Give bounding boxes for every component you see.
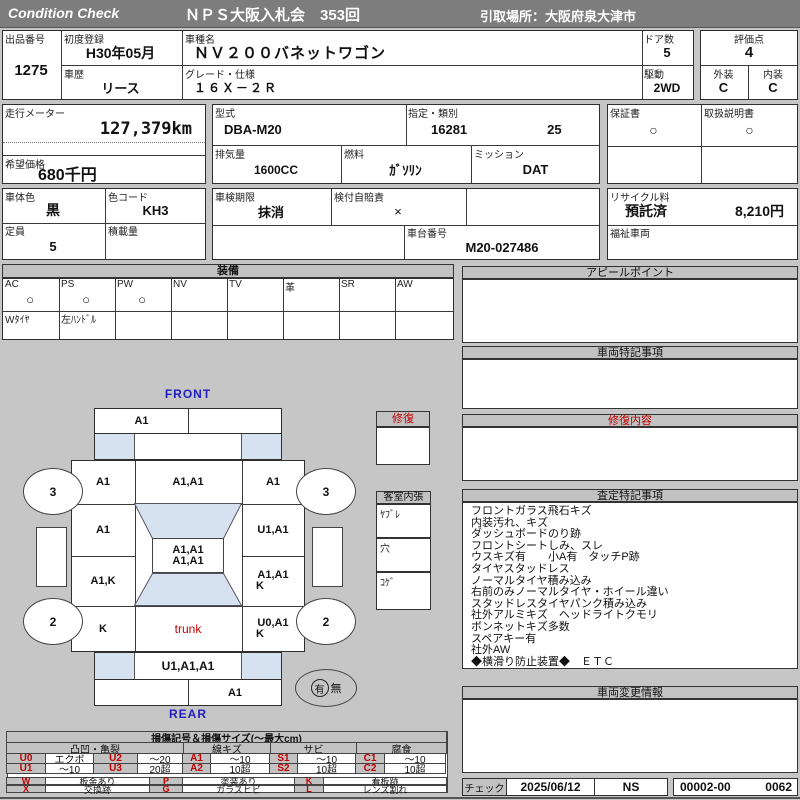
front-door-left-damage: A1 xyxy=(72,504,134,555)
change-info-body xyxy=(462,699,798,773)
equip-sr-label: SR xyxy=(341,279,355,290)
assessment-item: スペアキー有 xyxy=(471,634,789,646)
rear-gate-strip: U1,A1,A1 xyxy=(94,652,282,680)
front-bumper: A1 xyxy=(94,408,282,434)
first-registration-value: H30年05月 xyxy=(61,40,180,65)
roof-damage-line2: A1,A1 xyxy=(172,556,203,567)
body-color-value: 黒 xyxy=(2,198,104,222)
rear-bumper-right-damage: A1 xyxy=(189,680,281,705)
grade-cell: グレード・仕様 １６Ｘ－２Ｒ xyxy=(182,65,639,100)
interior-grade-cell: 内装 C xyxy=(748,65,798,100)
legend-value: ガラスヒビ xyxy=(182,785,295,793)
chassis-cell: 車台番号 M20-027486 xyxy=(404,224,600,260)
roof-damage: A1,A1 A1,A1 xyxy=(153,539,223,572)
recycle-status-value: 預託済 xyxy=(625,201,667,221)
header-bar: Condition Check ＮＰＳ大阪入札会 353回 引取場所：大阪府泉大… xyxy=(0,0,800,28)
equip-ac-cell: AC ○ xyxy=(2,278,58,310)
roof-damage-line1: A1,A1 xyxy=(172,545,203,556)
hood-damage: A1,A1 xyxy=(135,461,241,503)
quarter-right-damage-line2: K xyxy=(242,629,264,640)
warranty-cell: 保証書 ○ xyxy=(607,104,700,145)
front-door-right-damage: U1,A1 xyxy=(242,504,304,555)
equip-ps-cell: PS ○ xyxy=(58,278,114,310)
cabin-hole-label: 穴 xyxy=(380,540,390,555)
repair-mini-header: 修復 xyxy=(376,411,430,427)
legend-code: U3 xyxy=(93,763,138,774)
rear-door-right-damage-line2: K xyxy=(242,581,264,592)
legend-value: 10超 xyxy=(297,763,356,774)
legend-value: 10超 xyxy=(384,763,446,774)
trunk-label: trunk xyxy=(135,606,241,651)
price-cell: 希望価格 680千円 xyxy=(2,155,206,184)
sheet-number-2: 0062 xyxy=(765,780,792,794)
legend-value: 10超 xyxy=(210,763,270,774)
legend-code: S2 xyxy=(269,763,298,774)
diagram-front-label: FRONT xyxy=(138,387,238,400)
score-cell: 評価点 4 xyxy=(700,30,798,65)
spare-tire-no: 無 xyxy=(331,680,342,696)
lot-number-cell: 出品番号 1275 xyxy=(2,30,60,100)
repair-content-header: 修復内容 xyxy=(462,414,798,427)
equip-aw-label: AW xyxy=(397,279,413,290)
legend-value: 交換跡 xyxy=(45,785,150,793)
drive-cell: 駆動 2WD xyxy=(641,65,693,100)
rear-door-right-damage: A1,A1 K xyxy=(242,556,304,605)
side-step-right xyxy=(312,527,343,587)
equipment-header: 装備 xyxy=(2,264,454,278)
class-category-value: 25 xyxy=(547,122,561,137)
roof-panel: A1,A1 A1,A1 xyxy=(152,538,224,573)
check-inspector: NS xyxy=(595,779,667,795)
appeal-points-header: アピールポイント xyxy=(462,266,798,279)
model-code-value: DBA-M20 xyxy=(212,114,405,144)
wheel-rear-right: 2 xyxy=(296,598,356,645)
fuel-value: ｶﾞｿﾘﾝ xyxy=(341,155,470,184)
vehicle-notes-header: 車両特記事項 xyxy=(462,346,798,359)
manual-cell: 取扱説明書 ○ xyxy=(701,104,798,145)
class-number-value: 16281 xyxy=(431,122,467,137)
rear-gate-damage: U1,A1,A1 xyxy=(135,653,241,679)
equip-pw-mark: ○ xyxy=(114,288,170,310)
inspection-cell: 車検期限 抹消 xyxy=(212,188,330,224)
cabin-tear-label: ﾔﾌﾞﾚ xyxy=(380,506,400,521)
rear-corner-left xyxy=(95,653,135,679)
chassis-value: M20-027486 xyxy=(404,234,600,260)
equip-tv-label: TV xyxy=(229,279,242,290)
equip-wtire-cell: Wﾀｲﾔ xyxy=(2,310,58,340)
equip-ac-mark: ○ xyxy=(2,288,58,310)
legend-value: 20超 xyxy=(137,763,183,774)
doors-cell: ドア数 5 xyxy=(641,30,693,65)
interior-grade-value: C xyxy=(748,75,798,100)
history-cell: 車歴 リース xyxy=(61,65,180,100)
first-registration-cell: 初度登録 H30年05月 xyxy=(61,30,180,65)
model-name-cell: 車種名 ＮＶ２００バネットワゴン xyxy=(182,30,639,65)
score-value: 4 xyxy=(700,40,798,65)
odometer-value: 127,379km xyxy=(2,114,206,144)
front-cowl-strip xyxy=(94,433,282,460)
rear-window-glass xyxy=(134,573,242,606)
equip-wtire-label: Wﾀｲﾔ xyxy=(5,311,29,326)
auction-title: ＮＰＳ大阪入札会 353回 xyxy=(185,4,360,25)
warranty-mark: ○ xyxy=(607,114,700,145)
rear-door-right-damage-line1: A1,A1 xyxy=(257,570,288,581)
history-value: リース xyxy=(61,75,180,100)
lot-number-value: 1275 xyxy=(2,40,60,100)
capacity-cell: 定員 5 xyxy=(2,222,104,260)
equip-lhd-cell: 左ﾊﾝﾄﾞﾙ xyxy=(58,310,114,340)
quarter-right-damage: U0,A1 K xyxy=(242,606,304,651)
recycle-fee-cell: リサイクル料 預託済 8,210円 xyxy=(607,188,798,224)
legend-code: G xyxy=(149,785,183,793)
welfare-cell: 福祉車両 xyxy=(607,224,798,260)
welfare-value xyxy=(607,234,798,260)
manual-mark: ○ xyxy=(701,114,798,145)
model-code-cell: 型式 DBA-M20 xyxy=(212,104,405,144)
pickup-location: 引取場所：大阪府泉大津市 xyxy=(480,6,636,25)
insurance-cell: 検付自賠責 × xyxy=(331,188,465,224)
equip-nv-cell: NV xyxy=(170,278,226,310)
assessment-item: 社外AW xyxy=(471,645,789,657)
transmission-value: DAT xyxy=(471,155,600,184)
repair-content-body xyxy=(462,427,798,481)
cabin-burn-cell: ｺｹﾞ xyxy=(376,572,431,610)
assessment-item: タイヤスタッドレス xyxy=(471,564,789,576)
sheet-number-1: 00002-00 xyxy=(680,780,731,794)
repair-mini-body xyxy=(376,427,430,465)
exterior-grade-value: C xyxy=(700,75,747,100)
spare-tire-marker: 有 無 xyxy=(295,669,357,707)
equip-leather-cell: 革 xyxy=(282,278,338,310)
bottom-divider xyxy=(0,797,800,799)
legend-code: A2 xyxy=(182,763,211,774)
front-corner-right xyxy=(241,434,281,459)
front-corner-left xyxy=(95,434,135,459)
equip-leather-label: 革 xyxy=(285,279,295,294)
rear-door-left-damage: A1,K xyxy=(72,556,134,605)
windshield-glass xyxy=(134,503,242,539)
sheet-number-box: 00002-00 0062 xyxy=(673,778,798,796)
brand-logo: Condition Check xyxy=(8,5,119,21)
legend-code: L xyxy=(294,785,324,793)
recycle-fee-value: 8,210円 xyxy=(735,201,784,221)
load-value xyxy=(105,232,206,260)
assessment-notes-body: フロントガラス飛石キズ 内装汚れ、キズ ダッシュボードのり跡 フロントシートしみ… xyxy=(462,502,798,669)
price-value: 680千円 xyxy=(2,161,206,184)
displacement-value: 1600CC xyxy=(212,155,340,184)
equip-aw-cell: AW xyxy=(394,278,452,310)
legend-data-row-2: U1 ～10 U3 20超 A2 10超 S2 10超 C2 10超 xyxy=(7,763,448,774)
fender-right-damage: A1 xyxy=(242,461,304,503)
color-code-value: KH3 xyxy=(105,198,206,222)
diagram-rear-label: REAR xyxy=(138,707,238,720)
inspection-value: 抹消 xyxy=(212,198,330,224)
assessment-item: フロントガラス飛石キズ xyxy=(471,506,789,518)
equip-lhd-label: 左ﾊﾝﾄﾞﾙ xyxy=(61,311,96,326)
equip-ps-mark: ○ xyxy=(58,288,114,310)
transmission-cell: ミッション DAT xyxy=(471,145,600,184)
appeal-points-body xyxy=(462,279,798,343)
assessment-item: ◆横滑り防止装置◆ ＥＴＣ xyxy=(471,657,789,669)
cabin-hole-cell: 穴 xyxy=(376,538,431,572)
check-label: チェック xyxy=(463,779,507,795)
side-step-left xyxy=(36,527,67,587)
assessment-item: 右前のみノーマルタイヤ・ホイール違い xyxy=(471,587,789,599)
legend-code: C2 xyxy=(355,763,385,774)
cabin-lining-header: 客室内張 xyxy=(376,491,431,504)
change-info-header: 車両変更情報 xyxy=(462,686,798,699)
wheel-front-left: 3 xyxy=(23,468,83,515)
equip-tv-cell: TV xyxy=(226,278,282,310)
assessment-item: ボンネットキズ多数 xyxy=(471,622,789,634)
assessment-notes-header: 査定特記事項 xyxy=(462,489,798,502)
spare-tire-yes-circled: 有 xyxy=(311,679,329,697)
front-bumper-left-damage: A1 xyxy=(95,409,188,433)
drive-value: 2WD xyxy=(641,75,693,100)
equip-pw-cell: PW ○ xyxy=(114,278,170,310)
cabin-burn-label: ｺｹﾞ xyxy=(380,574,395,589)
legend-value: レンズ割れ xyxy=(323,785,447,793)
equip-nv-label: NV xyxy=(173,279,187,290)
fuel-cell: 燃料 ｶﾞｿﾘﾝ xyxy=(341,145,470,184)
doors-value: 5 xyxy=(641,40,693,65)
cabin-tear-cell: ﾔﾌﾞﾚ xyxy=(376,504,431,538)
grade-value: １６Ｘ－２Ｒ xyxy=(182,75,639,100)
color-code-cell: 色コード KH3 xyxy=(105,188,206,222)
capacity-value: 5 xyxy=(2,232,104,260)
exterior-grade-cell: 外装 C xyxy=(700,65,747,100)
auction-condition-sheet: Condition Check ＮＰＳ大阪入札会 353回 引取場所：大阪府泉大… xyxy=(0,0,800,800)
model-name-value: ＮＶ２００バネットワゴン xyxy=(182,40,639,65)
load-cell: 積載量 xyxy=(105,222,206,260)
legend-mark-row-2: X 交換跡 G ガラスヒビ L レンズ割れ xyxy=(7,785,448,793)
wheel-rear-left: 2 xyxy=(23,598,83,645)
rear-bumper: A1 xyxy=(94,679,282,706)
class-cell: 指定・類別 16281 25 xyxy=(405,104,600,144)
check-box: チェック 2025/06/12 NS xyxy=(462,778,668,796)
quarter-right-damage-line1: U0,A1 xyxy=(257,618,288,629)
displacement-cell: 排気量 1600CC xyxy=(212,145,340,184)
legend-value: ～10 xyxy=(45,763,94,774)
vehicle-notes-body xyxy=(462,359,798,409)
rear-corner-right xyxy=(241,653,281,679)
equip-sr-cell: SR xyxy=(338,278,394,310)
insurance-mark: × xyxy=(331,198,465,224)
legend-code: U1 xyxy=(6,763,46,774)
odometer-cell: 走行メーター 127,379km xyxy=(2,104,206,144)
check-date: 2025/06/12 xyxy=(507,779,595,795)
wheel-front-right: 3 xyxy=(296,468,356,515)
body-color-cell: 車体色 黒 xyxy=(2,188,104,222)
legend-code: X xyxy=(6,785,46,793)
